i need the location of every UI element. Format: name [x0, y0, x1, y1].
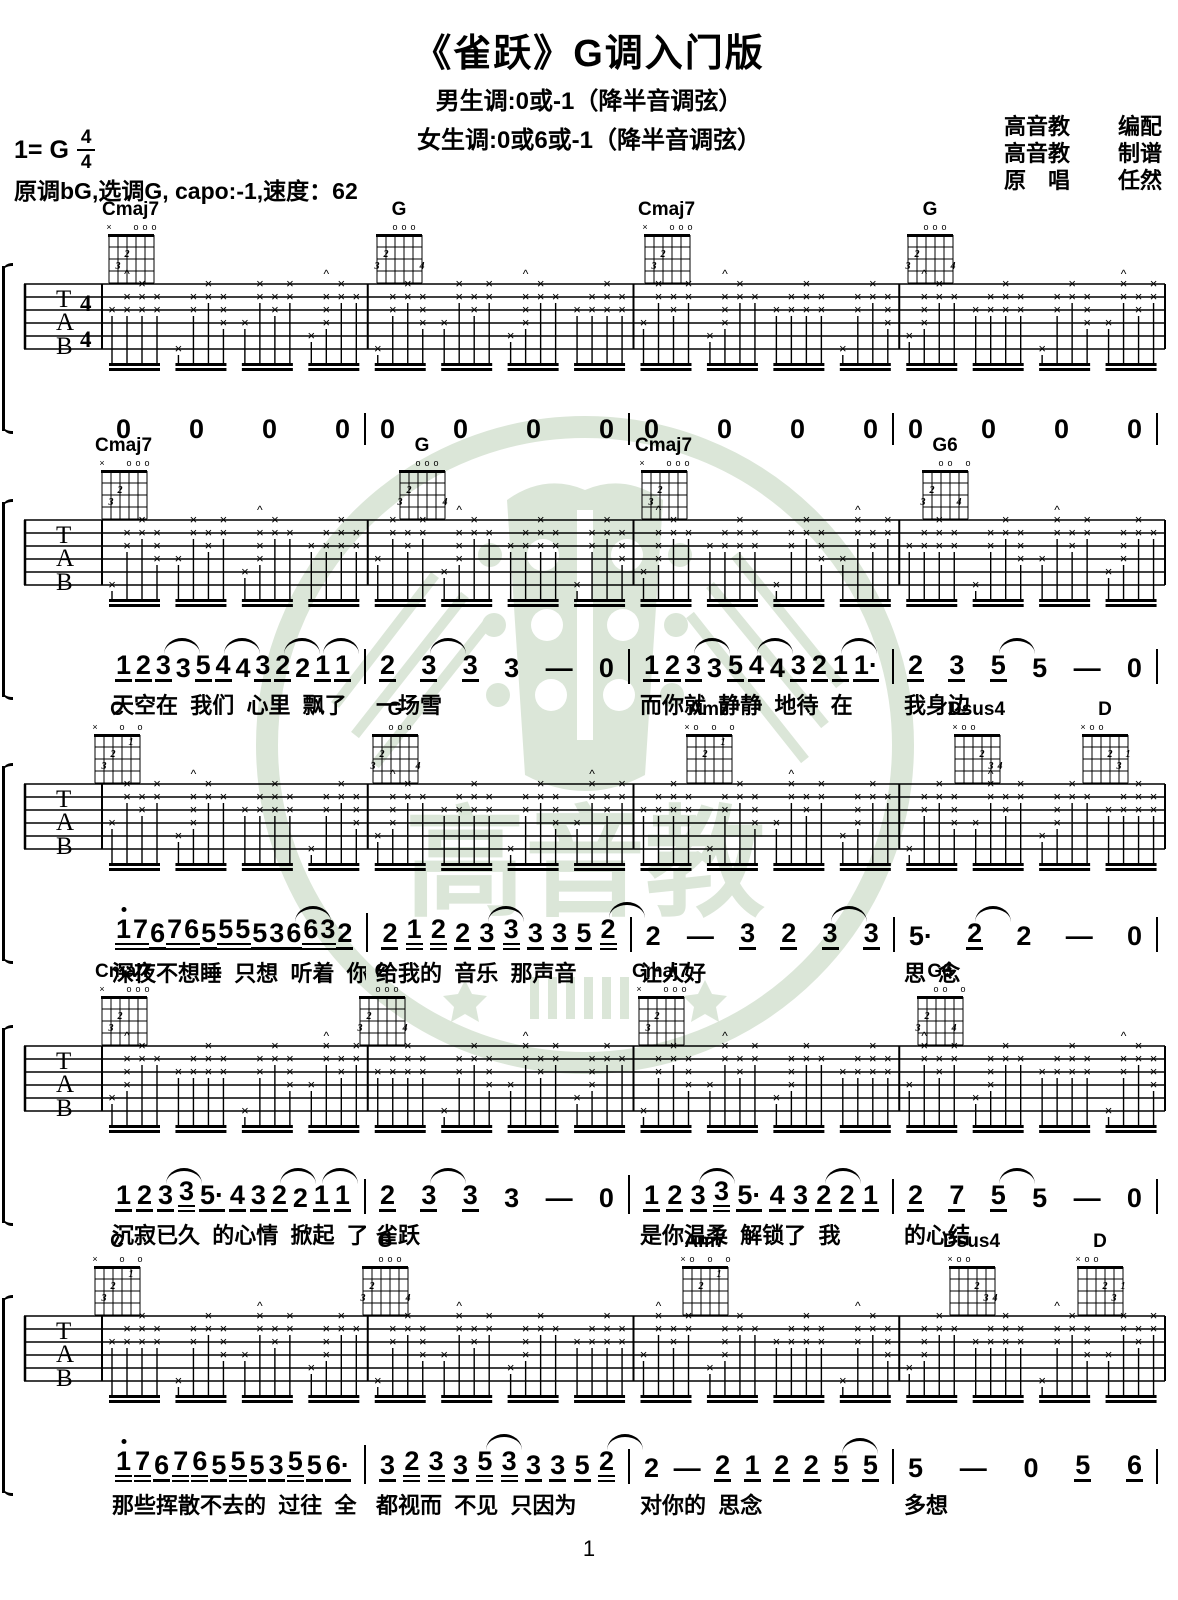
svg-text:A: A [56, 809, 74, 836]
chord-row: Cmaj7×ooo32Gooo324Cmaj7×ooo32G6ooo324 [10, 436, 1170, 502]
svg-text:×: × [205, 289, 213, 304]
jianpu-note: 3 [706, 654, 723, 682]
svg-text:o: o [151, 222, 156, 232]
svg-text:4: 4 [996, 761, 1002, 772]
svg-text:×: × [1150, 1077, 1158, 1092]
jianpu-note: 2 [135, 651, 152, 682]
svg-text:o: o [388, 722, 393, 732]
credit-arranger: 高音教 编配 [1004, 114, 1162, 141]
jianpu-measure: 2355—0 [892, 649, 1158, 684]
svg-text:×: × [588, 789, 596, 804]
svg-text:A: A [56, 309, 74, 336]
svg-text:×: × [220, 315, 228, 330]
jianpu-note: 2 [271, 1181, 288, 1212]
svg-text:o: o [387, 1254, 392, 1264]
svg-text:B: B [56, 1095, 73, 1122]
svg-text:×: × [205, 1321, 213, 1336]
svg-text:×: × [153, 1334, 161, 1349]
svg-text:o: o [406, 722, 411, 732]
lyrics-measure: 多想 [894, 1488, 1158, 1520]
svg-text:×: × [1150, 289, 1158, 304]
chord-name: G [903, 200, 957, 219]
svg-text:×: × [803, 1334, 811, 1349]
svg-text:^: ^ [257, 503, 263, 517]
svg-text:×: × [1150, 802, 1158, 817]
svg-text:×: × [839, 828, 847, 843]
svg-text:×: × [485, 1321, 493, 1336]
svg-text:×: × [818, 1051, 826, 1066]
svg-text:×: × [1120, 551, 1128, 566]
jianpu-note: 2 [598, 1447, 615, 1482]
svg-text:×: × [522, 802, 530, 817]
svg-text:o: o [396, 1254, 401, 1264]
chord-diagram: Cmaj7×ooo32 [635, 436, 692, 528]
chord-name: G [355, 962, 409, 981]
jianpu-note: 2 [811, 651, 828, 682]
jianpu-note: 6 [183, 915, 200, 950]
svg-text:×: × [1068, 538, 1076, 553]
svg-text:×: × [153, 302, 161, 317]
jianpu-note: 0 [598, 654, 615, 682]
jianpu-note: 1 [115, 915, 132, 950]
svg-text:^: ^ [1121, 267, 1127, 281]
svg-text:3: 3 [107, 1023, 113, 1034]
jianpu-note: 7 [172, 1447, 189, 1482]
jianpu-note: — [545, 654, 574, 682]
chord-name: G [368, 700, 422, 719]
svg-text:×: × [721, 802, 729, 817]
svg-text:×: × [972, 302, 980, 317]
chord-grid: ooo324 [395, 455, 449, 523]
jianpu-note: 5 [727, 651, 744, 682]
svg-text:×: × [987, 1077, 995, 1092]
chord-diagram: Gooo324 [372, 200, 426, 292]
svg-text:o: o [960, 984, 965, 994]
svg-text:4: 4 [415, 761, 421, 772]
svg-text:×: × [205, 1064, 213, 1079]
jianpu-note: 2 [294, 654, 311, 682]
svg-text:o: o [126, 984, 131, 994]
jianpu-note: 5 [287, 1447, 304, 1482]
tab-system: Cmaj7×ooo32Gooo324Cmaj7×ooo32G6ooo324TAB… [10, 962, 1170, 1250]
svg-text:×: × [1017, 1051, 1025, 1066]
svg-text:×: × [588, 1334, 596, 1349]
jianpu-note: 2 [292, 1184, 309, 1212]
chord-name: D [1073, 1232, 1127, 1251]
svg-text:1: 1 [129, 737, 134, 748]
jianpu-note: 5 [574, 1451, 591, 1482]
chord-diagram: Cmaj7×ooo32 [632, 962, 689, 1054]
svg-text:3: 3 [360, 1293, 366, 1304]
jianpu-note: 3 [462, 651, 479, 682]
time-signature-bottom: 4 [81, 151, 92, 172]
jianpu-note: 1 [115, 651, 132, 682]
svg-text:×: × [751, 1051, 759, 1066]
tab-system: C×oo321Gooo324Am7×ooo21Dsus4×oo234D×oo23… [10, 1232, 1170, 1520]
jianpu-measure: 17676555536632 [102, 913, 366, 952]
svg-text:×: × [655, 551, 663, 566]
system-bracket [2, 1028, 17, 1223]
svg-text:×: × [884, 525, 892, 540]
svg-text:o: o [711, 722, 716, 732]
lyrics-measure: 都视而 不见 只因为 [366, 1488, 630, 1520]
svg-text:×: × [256, 551, 264, 566]
jianpu-measure: 2—212255 [628, 1449, 892, 1484]
svg-text:×: × [618, 551, 626, 566]
svg-text:4: 4 [80, 327, 92, 352]
svg-text:4: 4 [951, 1023, 957, 1034]
jianpu-note: 2 [136, 1181, 153, 1212]
svg-text:o: o [707, 1254, 712, 1264]
credit-original-singer: 原 唱 任然 [1004, 168, 1162, 195]
jianpu-note: 2 [381, 919, 398, 950]
svg-text:×: × [175, 551, 183, 566]
svg-text:×: × [935, 789, 943, 804]
svg-text:2: 2 [698, 1281, 704, 1292]
svg-text:×: × [639, 458, 644, 468]
svg-text:×: × [338, 1321, 346, 1336]
jianpu-note: 3 [178, 1177, 195, 1212]
jianpu-note: 0 [1126, 654, 1143, 682]
jianpu-note: 3 [948, 651, 965, 682]
jianpu-note: 3 [420, 651, 437, 682]
svg-text:^: ^ [523, 1029, 529, 1043]
svg-text:3: 3 [101, 761, 107, 772]
svg-text:×: × [905, 328, 913, 343]
svg-text:×: × [588, 302, 596, 317]
jianpu-note: 2 [780, 919, 797, 950]
svg-text:×: × [1105, 802, 1113, 817]
chord-diagram: Cmaj7×ooo32 [638, 200, 695, 292]
chord-grid: ×oo234 [950, 719, 1004, 787]
svg-text:×: × [1017, 551, 1025, 566]
svg-text:×: × [485, 525, 493, 540]
svg-text:×: × [736, 289, 744, 304]
svg-text:×: × [972, 577, 980, 592]
svg-text:o: o [923, 222, 928, 232]
svg-text:×: × [419, 1347, 427, 1362]
jianpu-note: 1· [853, 651, 879, 682]
svg-text:o: o [424, 458, 429, 468]
svg-text:×: × [573, 1334, 581, 1349]
svg-text:o: o [942, 984, 947, 994]
jianpu-note: 2 [839, 1181, 856, 1212]
chord-row: Cmaj7×ooo32Gooo324Cmaj7×ooo32Gooo324 [10, 200, 1170, 266]
jianpu-note: 3 [379, 1451, 396, 1482]
svg-text:×: × [854, 302, 862, 317]
chord-grid: ×ooo32 [637, 455, 691, 523]
svg-text:×: × [603, 302, 611, 317]
svg-text:×: × [721, 538, 729, 553]
svg-text:3: 3 [107, 497, 113, 508]
svg-text:3: 3 [920, 497, 926, 508]
jianpu-note: 2 [379, 1181, 396, 1212]
jianpu-note: 1 [334, 1181, 351, 1212]
svg-text:×: × [1038, 828, 1046, 843]
svg-text:×: × [241, 1103, 249, 1118]
svg-text:o: o [135, 458, 140, 468]
jianpu-note: 1 [115, 1447, 132, 1482]
jianpu-note: 7 [134, 1447, 151, 1482]
svg-text:×: × [1105, 1347, 1113, 1362]
svg-text:×: × [884, 1347, 892, 1362]
svg-text:×: × [751, 538, 759, 553]
svg-text:o: o [725, 1254, 730, 1264]
tab-staff: TAB××××××××××××××××××××××^××××××××××××××… [10, 502, 1168, 620]
jianpu-note: 6 [153, 1451, 170, 1482]
svg-text:×: × [1075, 1254, 1080, 1264]
svg-text:3: 3 [644, 1023, 650, 1034]
svg-text:×: × [1083, 1064, 1091, 1079]
svg-text:×: × [286, 1077, 294, 1092]
chord-grid: ooo324 [355, 981, 409, 1049]
svg-text:×: × [353, 815, 361, 830]
jianpu-note: 0 [598, 1184, 615, 1212]
chord-name: G6 [918, 436, 972, 455]
svg-text:×: × [190, 815, 198, 830]
svg-text:×: × [854, 525, 862, 540]
jianpu-note: 5 [862, 1451, 879, 1482]
svg-text:×: × [455, 551, 463, 566]
svg-text:o: o [941, 222, 946, 232]
chord-diagram: Gooo324 [395, 436, 449, 528]
chord-diagram: G6ooo324 [913, 962, 967, 1054]
svg-text:×: × [1150, 525, 1158, 540]
svg-text:×: × [905, 841, 913, 856]
svg-text:×: × [706, 841, 714, 856]
jianpu-note: 3 [503, 654, 520, 682]
svg-text:×: × [655, 1064, 663, 1079]
svg-text:^: ^ [323, 1029, 329, 1043]
svg-text:×: × [108, 815, 116, 830]
svg-text:×: × [636, 984, 641, 994]
svg-text:×: × [706, 328, 714, 343]
key-signature: 1= G 4 4 [14, 128, 95, 172]
jianpu-note: 4 [229, 1181, 246, 1212]
svg-text:2: 2 [659, 249, 665, 260]
svg-text:×: × [338, 289, 346, 304]
svg-text:×: × [818, 1334, 826, 1349]
svg-text:3: 3 [357, 1023, 363, 1034]
svg-text:×: × [1002, 525, 1010, 540]
svg-text:×: × [256, 1321, 264, 1336]
svg-text:o: o [681, 984, 686, 994]
svg-text:×: × [947, 1254, 952, 1264]
svg-text:×: × [175, 828, 183, 843]
chord-diagram: Am7×ooo21 [678, 1232, 732, 1324]
svg-text:×: × [374, 828, 382, 843]
jianpu-note: 2 [336, 919, 353, 950]
chord-name: Cmaj7 [638, 200, 695, 219]
svg-text:×: × [818, 302, 826, 317]
svg-text:×: × [153, 551, 161, 566]
svg-text:1: 1 [721, 737, 726, 748]
chord-name: Cmaj7 [635, 436, 692, 455]
svg-text:o: o [689, 1254, 694, 1264]
svg-text:×: × [440, 1103, 448, 1118]
jianpu-measure: 2755—0 [892, 1179, 1158, 1214]
svg-text:2: 2 [924, 1011, 930, 1022]
jianpu-measure: 3233533352 [364, 1445, 628, 1484]
svg-text:×: × [537, 289, 545, 304]
svg-text:o: o [1089, 722, 1094, 732]
chord-grid: ×oo321 [90, 719, 144, 787]
svg-text:×: × [419, 315, 427, 330]
jianpu-note: 3 [501, 1447, 518, 1482]
jianpu-measure: 12335·43221 [628, 1175, 892, 1214]
jianpu-note: 2 [643, 1454, 660, 1482]
svg-text:^: ^ [789, 767, 795, 781]
jianpu-measure: 123354432211 [102, 649, 364, 684]
jianpu-note: 2 [907, 651, 924, 682]
svg-text:o: o [144, 458, 149, 468]
jianpu-measure: 5·22—0 [893, 917, 1158, 952]
svg-text:×: × [1017, 789, 1025, 804]
subtitle-male-key: 男生调:0或-1（降半音调弦） [0, 81, 1178, 116]
system-bracket [2, 502, 17, 697]
svg-text:×: × [440, 802, 448, 817]
svg-text:×: × [522, 1347, 530, 1362]
jianpu-note: — [686, 922, 715, 950]
svg-text:×: × [353, 538, 361, 553]
jianpu-note: 2 [815, 1181, 832, 1212]
jianpu-note: 3 [690, 1181, 707, 1212]
svg-text:4: 4 [956, 497, 962, 508]
svg-text:×: × [323, 1051, 331, 1066]
svg-text:×: × [972, 1334, 980, 1349]
svg-text:2: 2 [1107, 749, 1113, 760]
svg-text:×: × [220, 789, 228, 804]
jianpu-note: 2 [430, 915, 447, 950]
svg-text:×: × [190, 1334, 198, 1349]
tuning-info-line: 原调bG,选调G, capo:-1,速度：62 [14, 172, 358, 206]
svg-text:×: × [788, 1334, 796, 1349]
svg-text:^: ^ [323, 267, 329, 281]
svg-text:×: × [618, 789, 626, 804]
svg-text:^: ^ [257, 1299, 263, 1313]
svg-text:×: × [323, 315, 331, 330]
svg-text:×: × [537, 1064, 545, 1079]
svg-text:×: × [323, 802, 331, 817]
svg-text:×: × [123, 302, 131, 317]
system-bracket [2, 1298, 17, 1493]
svg-text:×: × [603, 1051, 611, 1066]
svg-text:×: × [485, 1077, 493, 1092]
page-title: 《雀跃》G调入门版 [0, 22, 1178, 77]
svg-text:^: ^ [722, 267, 728, 281]
jianpu-measure: 5—056 [892, 1449, 1158, 1484]
svg-text:×: × [603, 802, 611, 817]
time-signature-top: 4 [77, 128, 96, 151]
jianpu-note: — [1073, 654, 1102, 682]
chord-diagram: Cmaj7×ooo32 [95, 436, 152, 528]
svg-text:×: × [803, 802, 811, 817]
svg-text:2: 2 [116, 485, 122, 496]
svg-text:×: × [788, 538, 796, 553]
svg-text:2: 2 [973, 1281, 979, 1292]
chord-grid: ×ooo32 [104, 219, 158, 287]
jianpu-note: 3 [462, 1181, 479, 1212]
jianpu-note: 5· [908, 922, 934, 950]
jianpu-note: 5 [249, 1451, 266, 1482]
svg-text:×: × [507, 841, 515, 856]
svg-text:×: × [308, 538, 316, 553]
jianpu-note: 2 [600, 915, 617, 950]
svg-text:A: A [56, 1071, 74, 1098]
svg-text:1: 1 [129, 1269, 134, 1280]
svg-text:×: × [972, 815, 980, 830]
jianpu-note: 3 [319, 915, 336, 950]
svg-text:×: × [736, 1064, 744, 1079]
svg-text:3: 3 [1116, 761, 1122, 772]
jianpu-note: 3 [503, 915, 520, 950]
svg-text:×: × [655, 802, 663, 817]
chord-row: C×oo321Gooo324Am7×ooo21Dsus4×oo234D×oo23… [10, 1232, 1170, 1298]
svg-text:o: o [684, 458, 689, 468]
chord-diagram: D×oo231 [1073, 1232, 1127, 1324]
svg-text:×: × [552, 289, 560, 304]
svg-text:×: × [308, 1077, 316, 1092]
svg-text:×: × [935, 538, 943, 553]
svg-text:×: × [839, 1064, 847, 1079]
svg-text:×: × [271, 1051, 279, 1066]
svg-text:×: × [1053, 815, 1061, 830]
svg-text:×: × [640, 802, 648, 817]
jianpu-note: 2 [803, 1451, 820, 1482]
svg-text:×: × [818, 551, 826, 566]
svg-text:×: × [338, 538, 346, 553]
svg-text:2: 2 [379, 749, 385, 760]
svg-text:×: × [839, 1373, 847, 1388]
svg-text:×: × [323, 538, 331, 553]
svg-text:×: × [470, 1334, 478, 1349]
svg-text:×: × [205, 538, 213, 553]
svg-text:×: × [455, 289, 463, 304]
lyrics-line: 那些挥散不去的 过往 全都视而 不见 只因为对你的 思念多想 [102, 1488, 1158, 1520]
jianpu-note: 3 [863, 919, 880, 950]
svg-text:×: × [869, 289, 877, 304]
svg-text:2: 2 [978, 749, 984, 760]
svg-text:×: × [205, 789, 213, 804]
svg-text:×: × [1002, 1051, 1010, 1066]
svg-text:×: × [1083, 315, 1091, 330]
jianpu-note: 3 [452, 1451, 469, 1482]
svg-text:3: 3 [915, 1023, 921, 1034]
chord-diagram: Cmaj7×ooo32 [102, 200, 159, 292]
jianpu-note: 5 [990, 651, 1007, 682]
jianpu-note: 5 [217, 915, 234, 950]
svg-text:×: × [338, 789, 346, 804]
jianpu-note: 5 [200, 919, 217, 950]
svg-text:^: ^ [855, 1299, 861, 1313]
jianpu-note: 5 [1031, 1184, 1048, 1212]
svg-text:×: × [99, 984, 104, 994]
jianpu-note: 1 [115, 1181, 132, 1212]
sheet-music-page: 高音教 《雀跃》G调入门版 男生调:0或-1（降半音调弦） 女生调:0或6或-1… [0, 0, 1178, 1600]
jianpu-note: 4 [234, 654, 251, 682]
jianpu-note: 5 [1074, 1451, 1091, 1482]
svg-text:2: 2 [1102, 1281, 1108, 1292]
jianpu-note: — [545, 1184, 574, 1212]
svg-text:o: o [938, 458, 943, 468]
svg-text:2: 2 [123, 249, 129, 260]
jianpu-note: 1 [862, 1181, 879, 1212]
svg-text:×: × [839, 551, 847, 566]
jianpu-note: 3 [428, 1447, 445, 1482]
jianpu-note: 2 [966, 919, 983, 950]
svg-text:×: × [440, 1347, 448, 1362]
svg-text:o: o [1093, 1254, 1098, 1264]
